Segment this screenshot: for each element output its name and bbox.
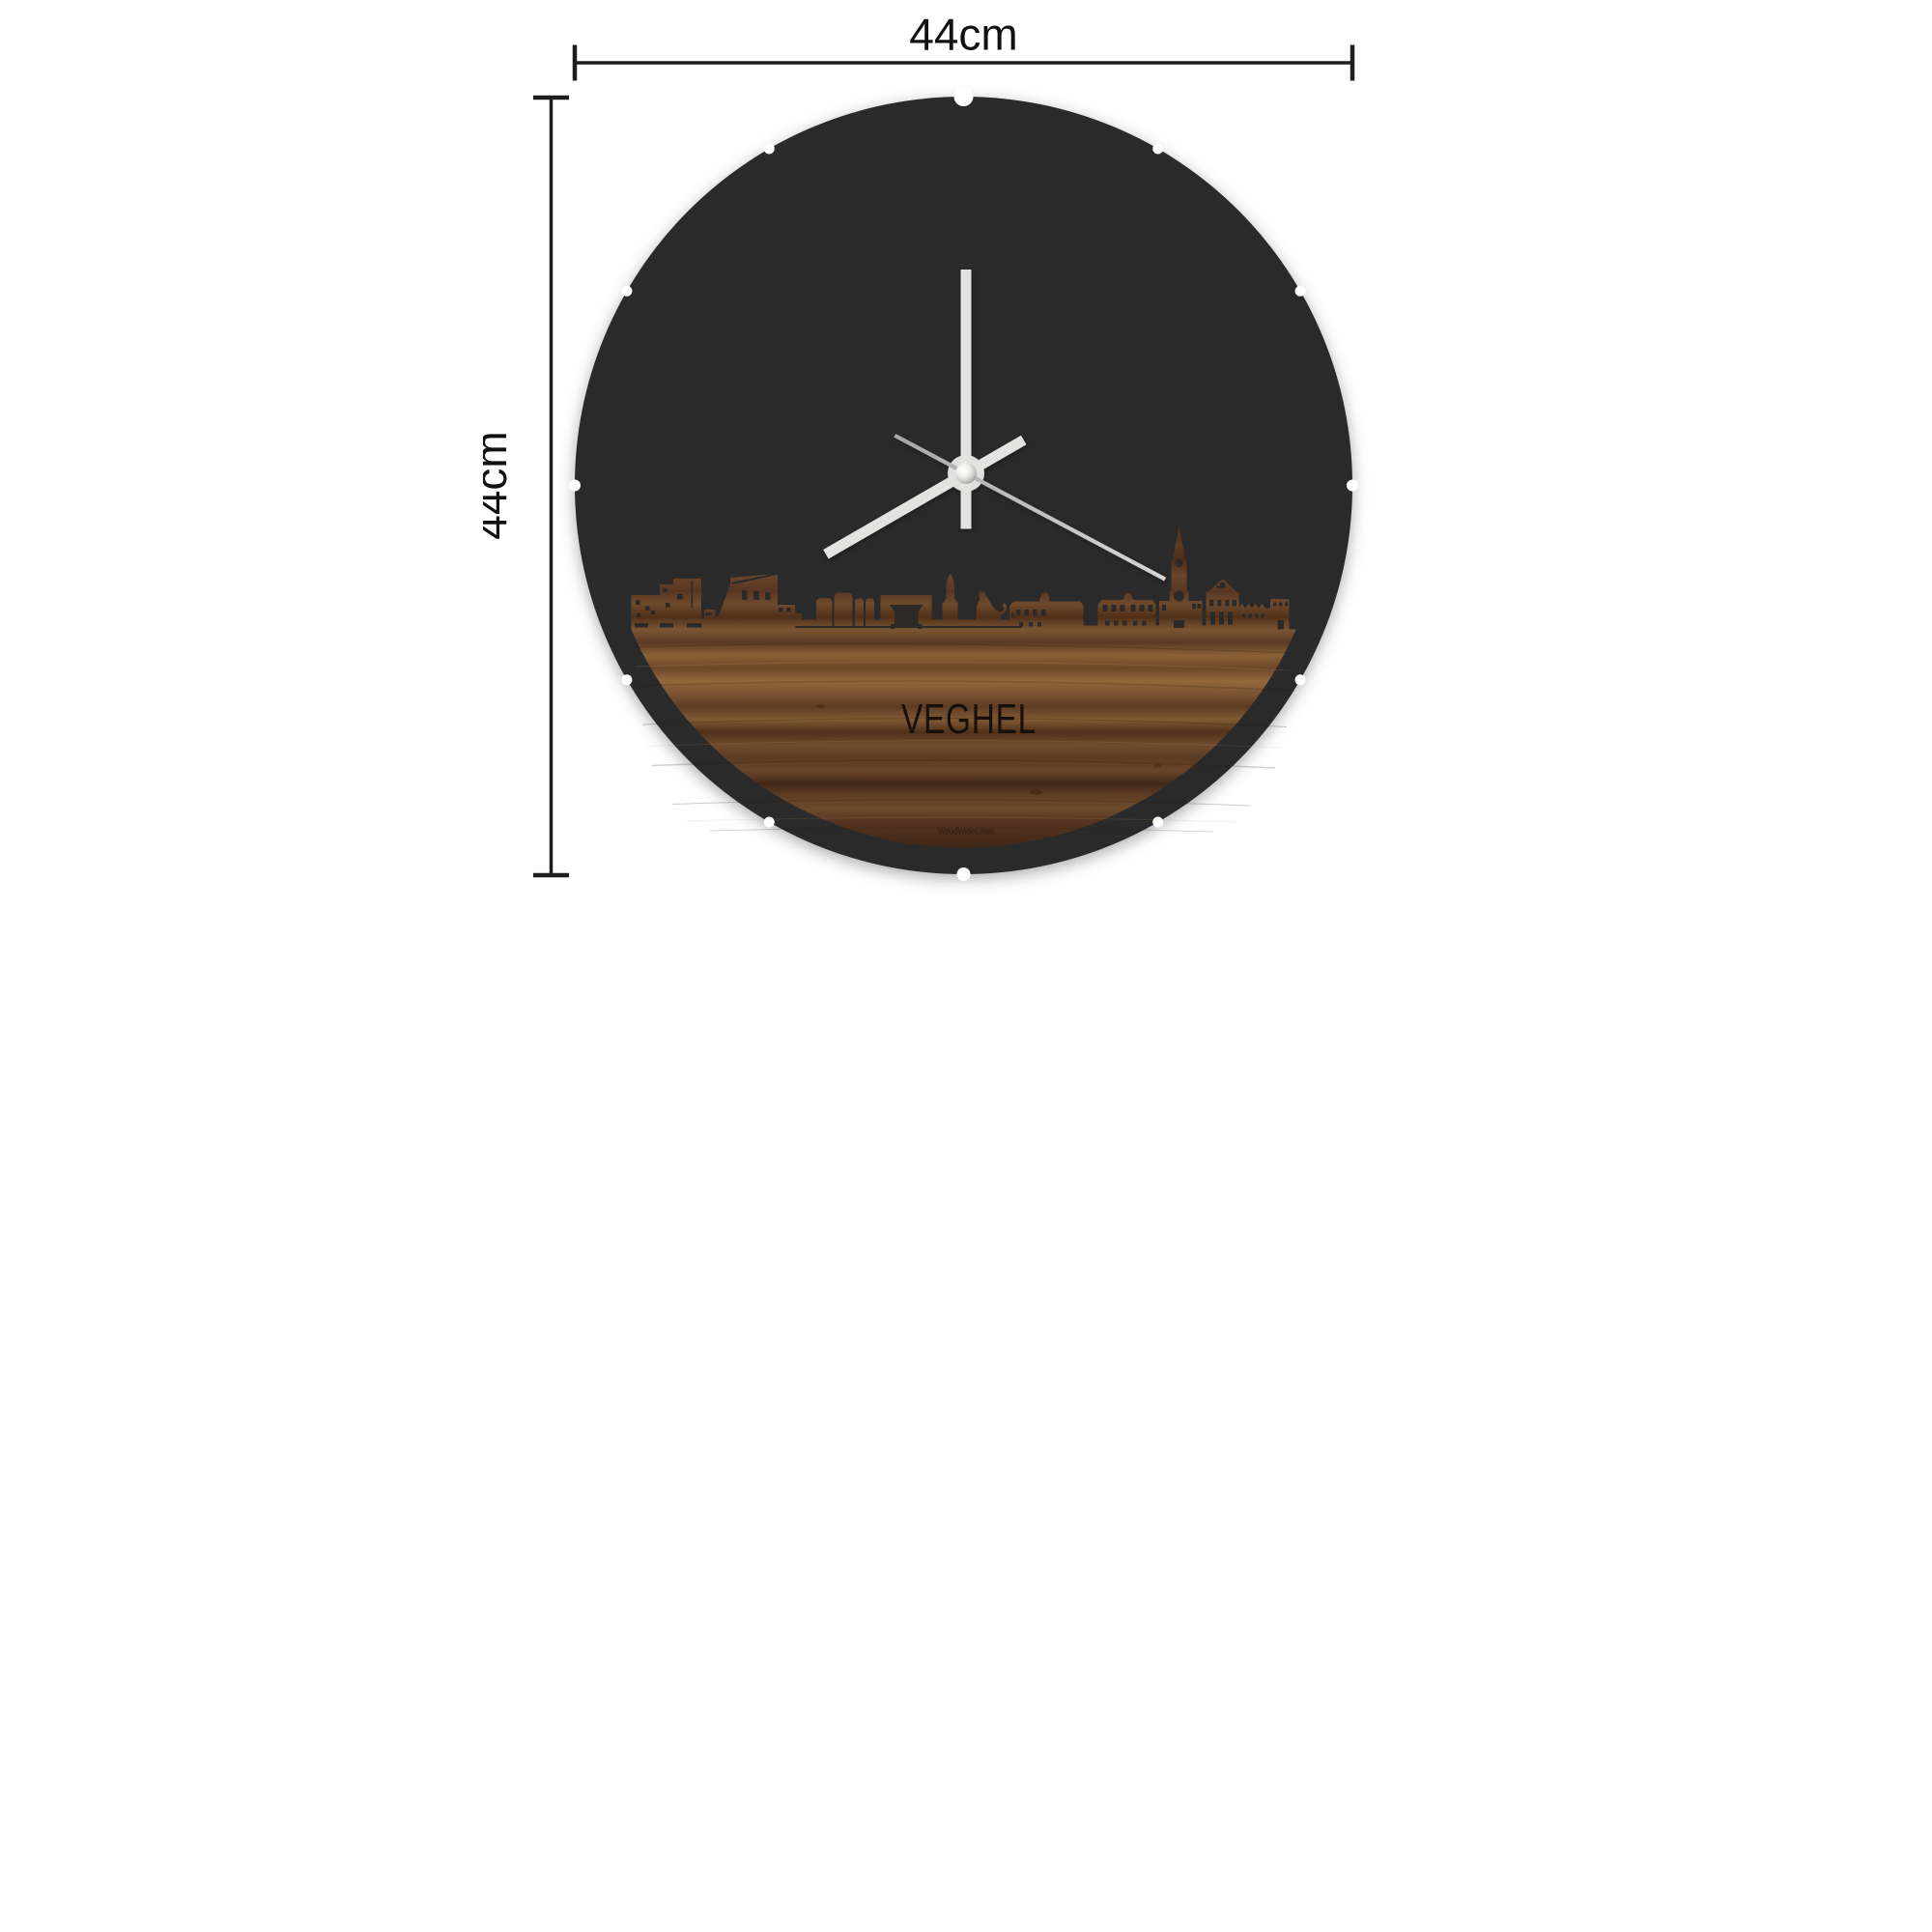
notch-10-icon: [621, 286, 632, 297]
width-dimension-label: 44cm: [909, 10, 1017, 60]
notch-11-icon: [764, 143, 775, 154]
clock-product-illustration: 44cm 44cm: [483, 0, 1449, 966]
notch-12-icon: [954, 87, 974, 106]
height-dimension-label: 44cm: [483, 431, 516, 539]
brand-watermark: WoodWideCities: [938, 827, 994, 838]
notch-3-icon: [1347, 480, 1358, 492]
minute-hand: [961, 270, 972, 529]
product-dimension-image: 44cm 44cm: [483, 0, 1449, 966]
clock: VEGHEL WoodWideCities: [569, 87, 1358, 881]
notch-9-icon: [569, 480, 581, 492]
notch-8-icon: [621, 674, 632, 685]
city-label: VEGHEL: [901, 696, 1037, 743]
hub-cap: [955, 463, 977, 484]
notch-5-icon: [1152, 817, 1163, 828]
notch-7-icon: [764, 817, 775, 828]
notch-6-icon: [957, 867, 971, 881]
notch-4-icon: [1295, 674, 1306, 685]
minute-hand-bar: [961, 270, 972, 529]
dimension-width: 44cm: [575, 10, 1352, 81]
dimension-height: 44cm: [483, 98, 569, 875]
notch-2-icon: [1295, 286, 1306, 297]
notch-1-icon: [1152, 143, 1163, 154]
